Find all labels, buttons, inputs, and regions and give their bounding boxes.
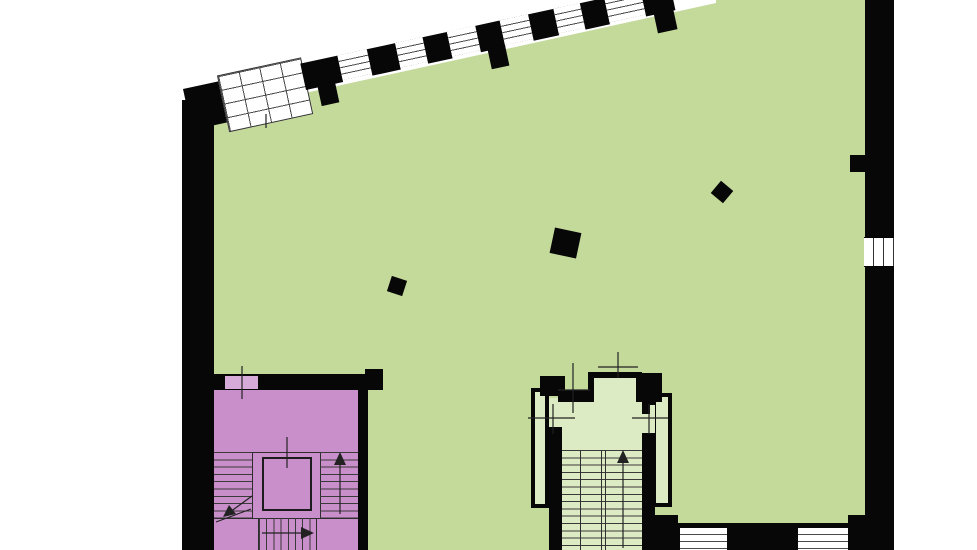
stair-core-wall-left — [549, 427, 562, 550]
stair-stringer-line — [605, 450, 606, 550]
facade-pier-stub — [653, 8, 677, 34]
floor-plan-canvas — [0, 0, 977, 550]
elevator-shaft — [262, 457, 312, 511]
door-leaf — [225, 376, 258, 389]
purple-stairwell-right-wall — [358, 385, 368, 550]
stair-core-block-bottomright — [642, 515, 678, 550]
facade-pier-stub — [317, 81, 339, 106]
left-wall — [182, 100, 214, 550]
stair-flight-left — [214, 452, 252, 518]
door-nub — [642, 405, 650, 414]
right-wall-pilaster — [850, 155, 865, 172]
right-wall — [865, 0, 894, 550]
stair-flight-bottom — [258, 518, 317, 550]
stair-stringer-line — [580, 450, 581, 550]
door-opening-left — [549, 398, 562, 427]
stair-stringer-line — [601, 450, 602, 550]
facade-pier-stub — [487, 44, 509, 69]
hollow-wall-right — [652, 393, 672, 507]
stair-core-block-topright — [640, 373, 662, 395]
hollow-wall-left — [531, 388, 549, 508]
vestibule-interior — [594, 378, 636, 412]
stair-edge-line — [252, 452, 253, 518]
facade-window — [604, 0, 645, 22]
bottom-wall-step — [848, 515, 894, 523]
bottom-wall-window — [798, 528, 848, 550]
glass-grid-window — [217, 57, 313, 132]
right-wall-window — [864, 237, 894, 267]
stair-flight-right — [320, 452, 358, 518]
stair-core-flight — [562, 450, 645, 550]
bottom-wall-window — [680, 528, 727, 550]
column — [550, 227, 582, 258]
